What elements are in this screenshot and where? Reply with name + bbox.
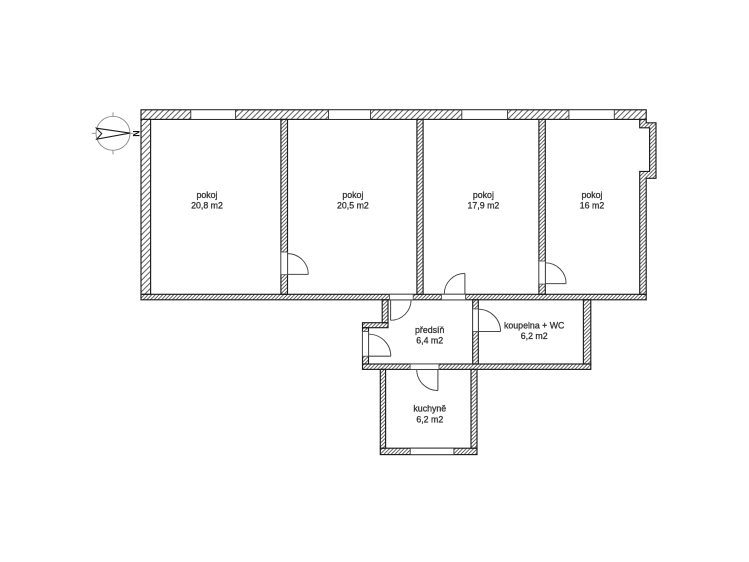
svg-text:předsíň: předsíň bbox=[415, 325, 444, 335]
svg-text:16 m2: 16 m2 bbox=[580, 200, 605, 210]
svg-text:kuchyně: kuchyně bbox=[413, 404, 446, 414]
svg-text:pokoj: pokoj bbox=[196, 190, 217, 200]
svg-text:6,4 m2: 6,4 m2 bbox=[416, 335, 443, 345]
svg-text:koupelna + WC: koupelna + WC bbox=[504, 320, 565, 330]
svg-text:6,2 m2: 6,2 m2 bbox=[416, 414, 443, 424]
svg-text:20,8 m2: 20,8 m2 bbox=[191, 200, 223, 210]
svg-text:pokoj: pokoj bbox=[473, 190, 494, 200]
svg-text:17,9 m2: 17,9 m2 bbox=[468, 200, 500, 210]
svg-text:20,5 m2: 20,5 m2 bbox=[337, 200, 369, 210]
svg-text:N: N bbox=[131, 130, 141, 136]
svg-text:pokoj: pokoj bbox=[581, 190, 602, 200]
svg-text:pokoj: pokoj bbox=[342, 190, 363, 200]
svg-text:6,2 m2: 6,2 m2 bbox=[521, 331, 548, 341]
